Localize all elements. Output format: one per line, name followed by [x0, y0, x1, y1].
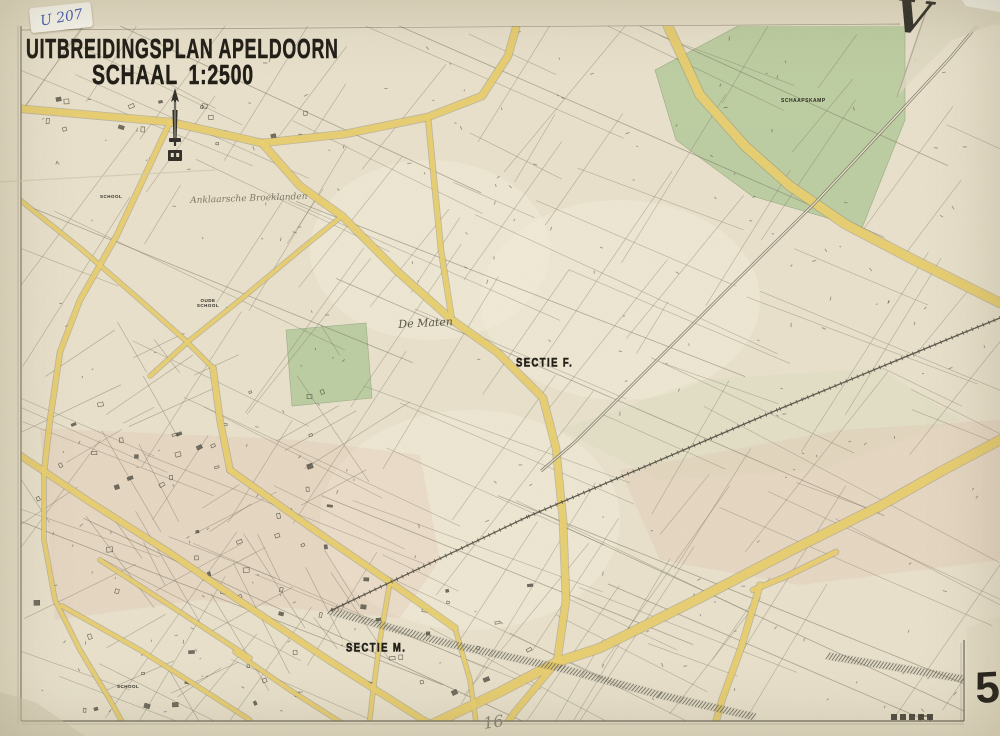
green-area-label: SCHAAPSKAMP [781, 98, 826, 104]
corner-v-mark: V [891, 0, 933, 46]
sectie-f-label: SECTIE F. [516, 357, 573, 370]
sectie-m-label: SECTIE M. [346, 642, 406, 655]
map-scale: SCHAAL 1:2500 [92, 60, 254, 92]
sheet-number: 5 [974, 663, 1000, 714]
map-sheet: U 207 UITBREIDINGSPLAN APELDOORN SCHAAL … [0, 0, 1000, 736]
school-bottom-label: SCHOOL [117, 684, 139, 689]
map-canvas [0, 0, 1000, 736]
pencil-note: 16 [482, 711, 505, 733]
oude-school-label: OUDE SCHOOL [196, 298, 220, 308]
sticker-text: U 207 [38, 6, 83, 29]
school-top-label: SCHOOL [100, 194, 122, 199]
